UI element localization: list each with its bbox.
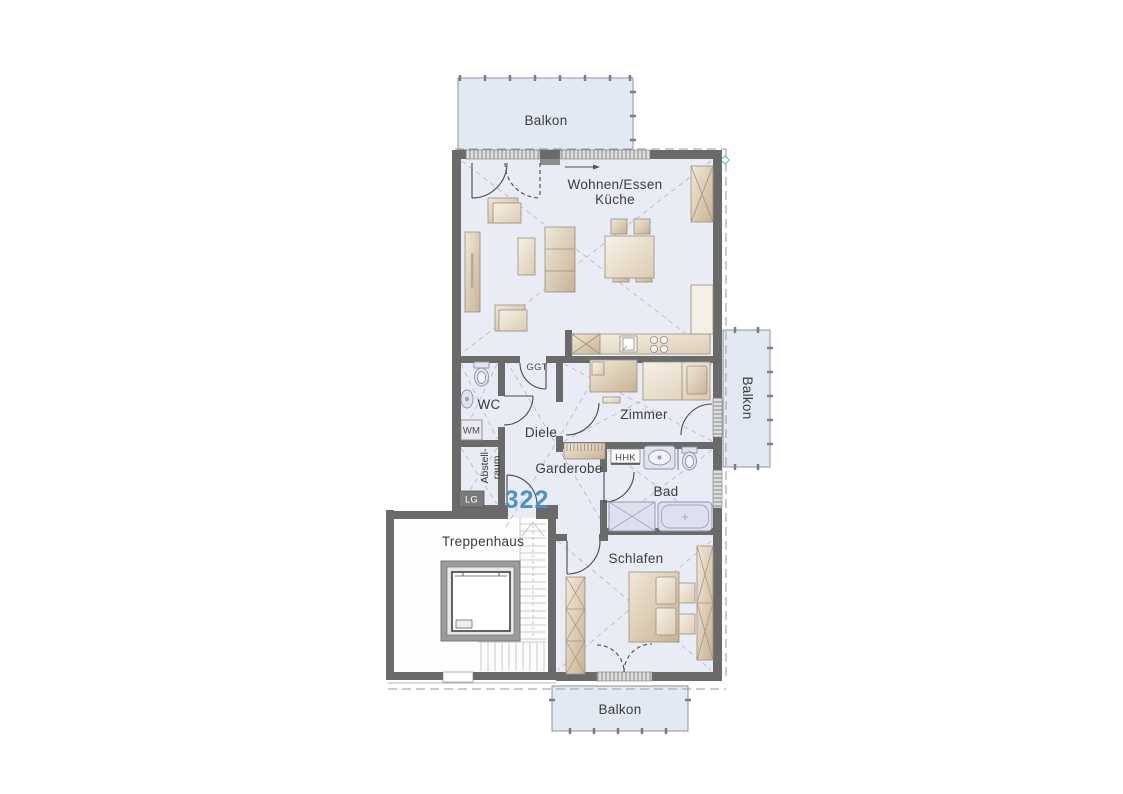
room-label-schlafen: Schlafen	[609, 551, 664, 566]
window-living-left	[466, 150, 540, 159]
washbasin-icon	[461, 390, 473, 408]
room-label-garderobe: Garderobe	[535, 461, 602, 476]
wardrobe	[691, 166, 713, 222]
pillow	[687, 366, 707, 394]
room-label-wohnen-line1: Wohnen/Essen	[568, 177, 663, 192]
annotation-wm: WM	[463, 426, 480, 437]
shower-icon	[609, 502, 655, 531]
armchair	[495, 305, 527, 331]
annotation-ggt: GGT	[526, 362, 547, 373]
pillow	[656, 608, 676, 635]
toilet-icon	[682, 447, 697, 470]
room-label-diele: Diele	[525, 425, 557, 440]
floor-plan-page: Balkon Wohnen/Essen Küche GGT WC WM Diel…	[0, 0, 1123, 794]
elevator	[441, 561, 520, 641]
side-table	[518, 238, 535, 275]
single-bed	[643, 362, 710, 400]
room-label-zimmer: Zimmer	[620, 407, 668, 422]
kitchen-tall-unit	[691, 285, 713, 334]
room-label-wc: WC	[477, 397, 500, 412]
room-label-wohnen-line2: Küche	[595, 192, 635, 207]
washbasin-icon	[644, 446, 675, 469]
armchair	[488, 198, 521, 223]
room-label-balkon-right: Balkon	[740, 376, 755, 419]
bathtub-icon	[658, 502, 712, 531]
wardrobe	[697, 546, 713, 660]
room-label-abstellraum-line2: raum.	[491, 453, 503, 480]
lg-box: LG	[459, 491, 484, 507]
dining-table	[605, 236, 654, 278]
survey-marker-icon	[721, 156, 729, 164]
room-label-balkon-bottom: Balkon	[598, 702, 641, 717]
room-label-bad: Bad	[654, 484, 679, 499]
window-schlafen-balcony-door	[597, 672, 652, 681]
nightstand	[679, 583, 695, 603]
room-label-balkon-top: Balkon	[524, 113, 567, 128]
window-living-right	[560, 150, 650, 159]
room-label-treppenhaus: Treppenhaus	[442, 534, 524, 549]
floor-plan-drawing: Balkon Wohnen/Essen Küche GGT WC WM Diel…	[0, 0, 1123, 794]
window-zimmer-balcony-door	[713, 398, 722, 437]
annotation-hhk: HHK	[615, 453, 636, 464]
annotation-lg: LG	[465, 495, 478, 506]
unit-number: 322	[505, 486, 550, 514]
double-bed	[629, 572, 679, 642]
pillow	[656, 577, 676, 604]
window-bad	[713, 470, 722, 508]
nightstand	[679, 614, 695, 634]
room-label-abstellraum-line1: Abstell-	[479, 448, 491, 484]
coat-rack	[564, 443, 605, 459]
toilet-icon	[474, 362, 489, 386]
rug	[603, 397, 620, 403]
wardrobe	[566, 577, 585, 674]
window-stairwell	[443, 672, 473, 682]
sofa	[545, 227, 575, 292]
